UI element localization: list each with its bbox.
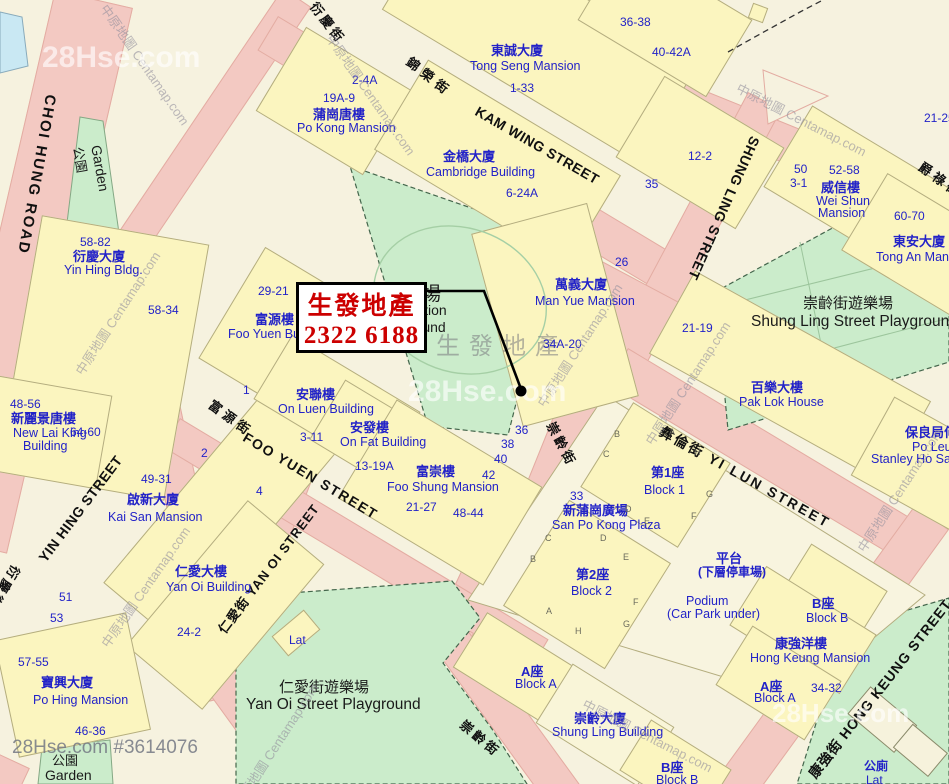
brand-watermark: 28Hse.com xyxy=(408,376,566,408)
toilet-label-en: Lat xyxy=(866,774,883,784)
garden-bottom-label-en: Garden xyxy=(45,768,92,783)
num: 26 xyxy=(615,256,628,269)
new-lai-king-cjk: 新麗景唐樓 xyxy=(11,412,76,426)
block2-cjk: 第2座 xyxy=(576,568,609,582)
yan-oi-bldg-cjk: 仁愛大樓 xyxy=(175,565,227,579)
spk-blockB-en: Block B xyxy=(656,774,698,784)
tower-letter: G xyxy=(706,490,713,499)
brand-watermark: 28Hse.com xyxy=(42,42,200,74)
num: 12-2 xyxy=(688,150,712,163)
num: 29-21 xyxy=(258,285,289,298)
num: 42 xyxy=(482,469,495,482)
tower-letter: E xyxy=(644,517,650,526)
agency-callout[interactable]: 生發地產 2322 6188 xyxy=(296,282,427,353)
tower-letter: G xyxy=(623,620,630,629)
num: 64-60 xyxy=(70,426,101,439)
agency-callout-phone: 2322 6188 xyxy=(299,322,424,350)
tower-letter: D xyxy=(625,505,632,514)
num: 49-31 xyxy=(141,473,172,486)
yan-oi-playground-label-en: Yan Oi Street Playground xyxy=(246,697,421,713)
garden-top-label-cjk: 公園 xyxy=(71,146,89,174)
num: 21-27 xyxy=(406,501,437,514)
yan-oi-bldg-en: Yan Oi Building xyxy=(166,581,251,594)
num: 1-33 xyxy=(510,82,534,95)
podium-cjk1: 平台 xyxy=(716,552,742,566)
hk-blockB-cjk: B座 xyxy=(812,597,834,611)
podium-cjk2: (下層停車場) xyxy=(698,566,766,579)
kai-san-cjk: 啟新大廈 xyxy=(127,493,179,507)
podium-en2: (Car Park under) xyxy=(667,608,760,621)
num: 3-11 xyxy=(300,431,323,444)
num: 48-56 xyxy=(10,398,41,411)
num: 48-44 xyxy=(453,507,484,520)
hk-mansion-cjk: 康強洋樓 xyxy=(775,637,827,651)
num: 19A-9 xyxy=(323,92,355,105)
tower-letter: A xyxy=(669,428,675,437)
pak-lok-en: Pak Lok House xyxy=(739,396,824,409)
num: 50 xyxy=(794,163,807,176)
tower-letter: D xyxy=(600,534,607,543)
num: 58-34 xyxy=(148,304,179,317)
num: 3-1 xyxy=(790,177,807,190)
cambridge-cjk: 金橋大廈 xyxy=(443,150,495,164)
num: 58-82 xyxy=(80,236,111,249)
listing-id-watermark: 28Hse.com #3614076 xyxy=(12,738,198,758)
num: 36-38 xyxy=(620,16,651,29)
num: 1 xyxy=(243,384,250,397)
hk-blockB-en: Block B xyxy=(806,612,848,625)
block2-en: Block 2 xyxy=(571,585,612,598)
cambridge-en: Cambridge Building xyxy=(426,166,535,179)
on-fat-en: On Fat Building xyxy=(340,436,426,449)
yin-hing-bldg-cjk: 衍慶大廈 xyxy=(73,250,125,264)
wei-shun-cjk: 威信樓 xyxy=(821,181,860,195)
num: 33 xyxy=(570,490,583,503)
hk-mansion-en: Hong Keung Mansion xyxy=(750,652,870,665)
num: 34-32 xyxy=(811,682,842,695)
wei-shun-en2: Mansion xyxy=(818,207,865,220)
tower-letter: C xyxy=(545,534,552,543)
num: 57-55 xyxy=(18,656,49,669)
foo-shung-en: Foo Shung Mansion xyxy=(387,481,499,494)
num: 24-2 xyxy=(177,626,201,639)
lat-hut-label: Lat xyxy=(289,634,306,647)
num: 35 xyxy=(645,178,658,191)
on-luen-en: On Luen Building xyxy=(278,403,374,416)
tower-letter: F xyxy=(691,512,697,521)
tong-seng-en: Tong Seng Mansion xyxy=(470,60,581,73)
spk-blockA-en: Block A xyxy=(515,678,557,691)
agency-callout-name: 生發地產 xyxy=(299,286,424,322)
on-luen-cjk: 安聯樓 xyxy=(296,388,335,402)
num: 40 xyxy=(494,453,507,466)
num: 6-24A xyxy=(506,187,538,200)
tower-letter: C xyxy=(603,450,610,459)
man-yue-cjk: 萬義大廈 xyxy=(555,278,607,292)
num: 52-58 xyxy=(829,164,860,177)
tower-letter: E xyxy=(623,553,629,562)
po-kong-cjk: 蒲崗唐樓 xyxy=(313,108,365,122)
foo-shung-cjk: 富崇樓 xyxy=(416,465,455,479)
brand-watermark: 28Hse.com xyxy=(772,700,909,727)
foo-yuen-bldg-cjk: 富源樓 xyxy=(255,313,294,327)
po-hing-en: Po Hing Mansion xyxy=(33,694,128,707)
num: 2 xyxy=(201,447,208,460)
num: 46-36 xyxy=(75,725,106,738)
shung-ling-playground-label-cjk: 崇齡街遊樂場 xyxy=(803,296,893,312)
num: 4 xyxy=(256,485,263,498)
num: 51 xyxy=(59,591,72,604)
toilet-label-cjk: 公廁 xyxy=(864,760,888,773)
num: 13-19A xyxy=(355,460,394,473)
num: 38 xyxy=(501,438,514,451)
tower-letter: F xyxy=(633,598,639,607)
block1-cjk: 第1座 xyxy=(651,466,684,480)
tower-letter: H xyxy=(694,448,701,457)
num: 21-25 xyxy=(924,112,949,125)
tong-an-en: Tong An Mansion xyxy=(876,251,949,264)
num: 36 xyxy=(515,424,528,437)
kai-san-en: Kai San Mansion xyxy=(108,511,203,524)
on-fat-cjk: 安發樓 xyxy=(350,421,389,435)
spk-plaza-cjk: 新蒲崗廣場 xyxy=(563,504,628,518)
tower-letter: B xyxy=(530,555,536,564)
num: 53 xyxy=(50,612,63,625)
po-hing-cjk: 寶興大廈 xyxy=(41,676,93,690)
tower-letter: H xyxy=(575,627,582,636)
pak-lok-cjk: 百樂大樓 xyxy=(751,381,803,395)
tower-letter: A xyxy=(546,607,552,616)
tong-an-cjk: 東安大廈 xyxy=(893,235,945,249)
num: 60-70 xyxy=(894,210,925,223)
map-canvas[interactable]: CHOI HUNG ROAD KAM WING STREET 錦榮街 SHUNG… xyxy=(0,0,949,784)
tong-seng-cjk: 東誠大廈 xyxy=(491,44,543,58)
shung-ling-playground-label-en: Shung Ling Street Playground xyxy=(751,314,949,330)
tower-letter: B xyxy=(614,430,620,439)
boundary-dashes xyxy=(728,0,823,52)
block1-en: Block 1 xyxy=(644,484,685,497)
yan-oi-playground-label-cjk: 仁愛街遊樂場 xyxy=(279,680,369,696)
num: 40-42A xyxy=(652,46,691,59)
new-lai-king-en2: Building xyxy=(23,440,67,453)
